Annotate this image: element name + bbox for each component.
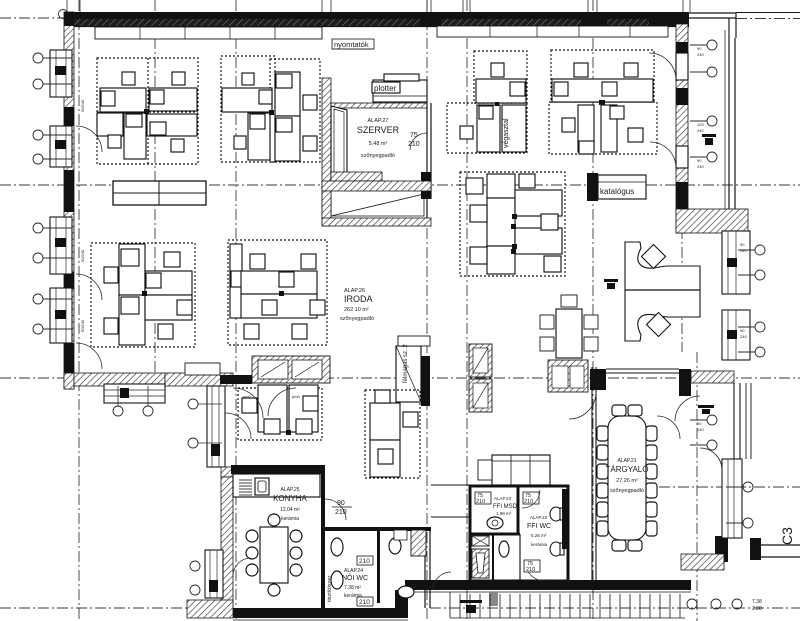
svg-text:210: 210 (524, 499, 533, 505)
svg-text:240: 240 (740, 248, 747, 253)
svg-text:12.04 m²: 12.04 m² (280, 507, 300, 513)
svg-text:plotter: plotter (374, 84, 397, 93)
svg-text:TÁRGYALÓ: TÁRGYALÓ (606, 465, 649, 474)
svg-text:nyomtatók: nyomtatók (334, 40, 369, 49)
svg-text:FFI WC: FFI WC (527, 523, 551, 530)
svg-text:90: 90 (740, 328, 745, 333)
svg-text:90/240: 90/240 (80, 319, 85, 332)
svg-text:7.38 m²: 7.38 m² (344, 585, 361, 591)
svg-text:5.26 m²: 5.26 m² (531, 533, 547, 538)
svg-text:210: 210 (526, 567, 535, 573)
svg-text:kerámia: kerámia (281, 516, 299, 522)
svg-text:210: 210 (476, 499, 485, 505)
svg-text:ALAP.25: ALAP.25 (280, 487, 299, 493)
svg-text:katalógus: katalógus (600, 187, 634, 196)
svg-text:végasztal: végasztal (503, 118, 510, 148)
svg-text:210: 210 (408, 141, 420, 148)
svg-text:félmagas sz. 2: félmagas sz. 2 (403, 344, 409, 383)
svg-text:90/240: 90/240 (80, 99, 85, 112)
svg-text:240: 240 (697, 427, 704, 432)
svg-text:90: 90 (697, 46, 702, 51)
svg-text:262.10 m²: 262.10 m² (344, 307, 369, 313)
svg-text:szőnyegpadló: szőnyegpadló (610, 488, 644, 494)
svg-text:ALAP.23: ALAP.23 (494, 496, 512, 501)
svg-text:90: 90 (740, 242, 745, 247)
svg-text:210: 210 (335, 509, 347, 516)
svg-text:NŐI WC: NŐI WC (342, 573, 368, 582)
svg-text:75: 75 (410, 132, 418, 139)
svg-text:ALAP.24: ALAP.24 (344, 568, 363, 574)
svg-text:ALAP.21: ALAP.21 (617, 458, 636, 464)
svg-text:KONYHA: KONYHA (273, 494, 307, 503)
svg-text:240: 240 (697, 164, 704, 169)
svg-text:C3: C3 (779, 527, 795, 545)
svg-text:IRODA: IRODA (344, 294, 373, 304)
svg-text:szőnyegpadló: szőnyegpadló (361, 153, 395, 159)
svg-text:120: 120 (697, 122, 704, 127)
svg-text:27.26 m²: 27.26 m² (616, 478, 638, 484)
svg-text:240: 240 (697, 52, 704, 57)
svg-text:240: 240 (697, 128, 704, 133)
svg-text:7.38: 7.38 (752, 599, 762, 605)
svg-text:FFI MSD: FFI MSD (493, 504, 518, 510)
svg-text:ALAP.27: ALAP.27 (367, 118, 388, 124)
svg-text:90: 90 (697, 158, 702, 163)
svg-text:240: 240 (740, 334, 747, 339)
svg-text:5.48 m²: 5.48 m² (369, 141, 388, 147)
svg-text:pm0: pm0 (243, 394, 252, 399)
svg-text:szőnyegpadló: szőnyegpadló (340, 316, 374, 322)
svg-text:tisztítószer: tisztítószer (327, 576, 333, 602)
svg-text:210: 210 (359, 558, 370, 565)
svg-text:kerámia: kerámia (531, 542, 548, 547)
svg-text:210: 210 (359, 599, 370, 606)
svg-text:90: 90 (337, 500, 345, 507)
svg-text:pm0: pm0 (292, 394, 301, 399)
svg-text:2.88: 2.88 (752, 606, 762, 612)
svg-text:90: 90 (697, 421, 702, 426)
svg-text:SZERVER: SZERVER (357, 125, 400, 135)
svg-text:ALAP.22: ALAP.22 (530, 515, 548, 520)
svg-text:1.99 m²: 1.99 m² (496, 511, 512, 516)
svg-text:90/240: 90/240 (80, 249, 85, 262)
